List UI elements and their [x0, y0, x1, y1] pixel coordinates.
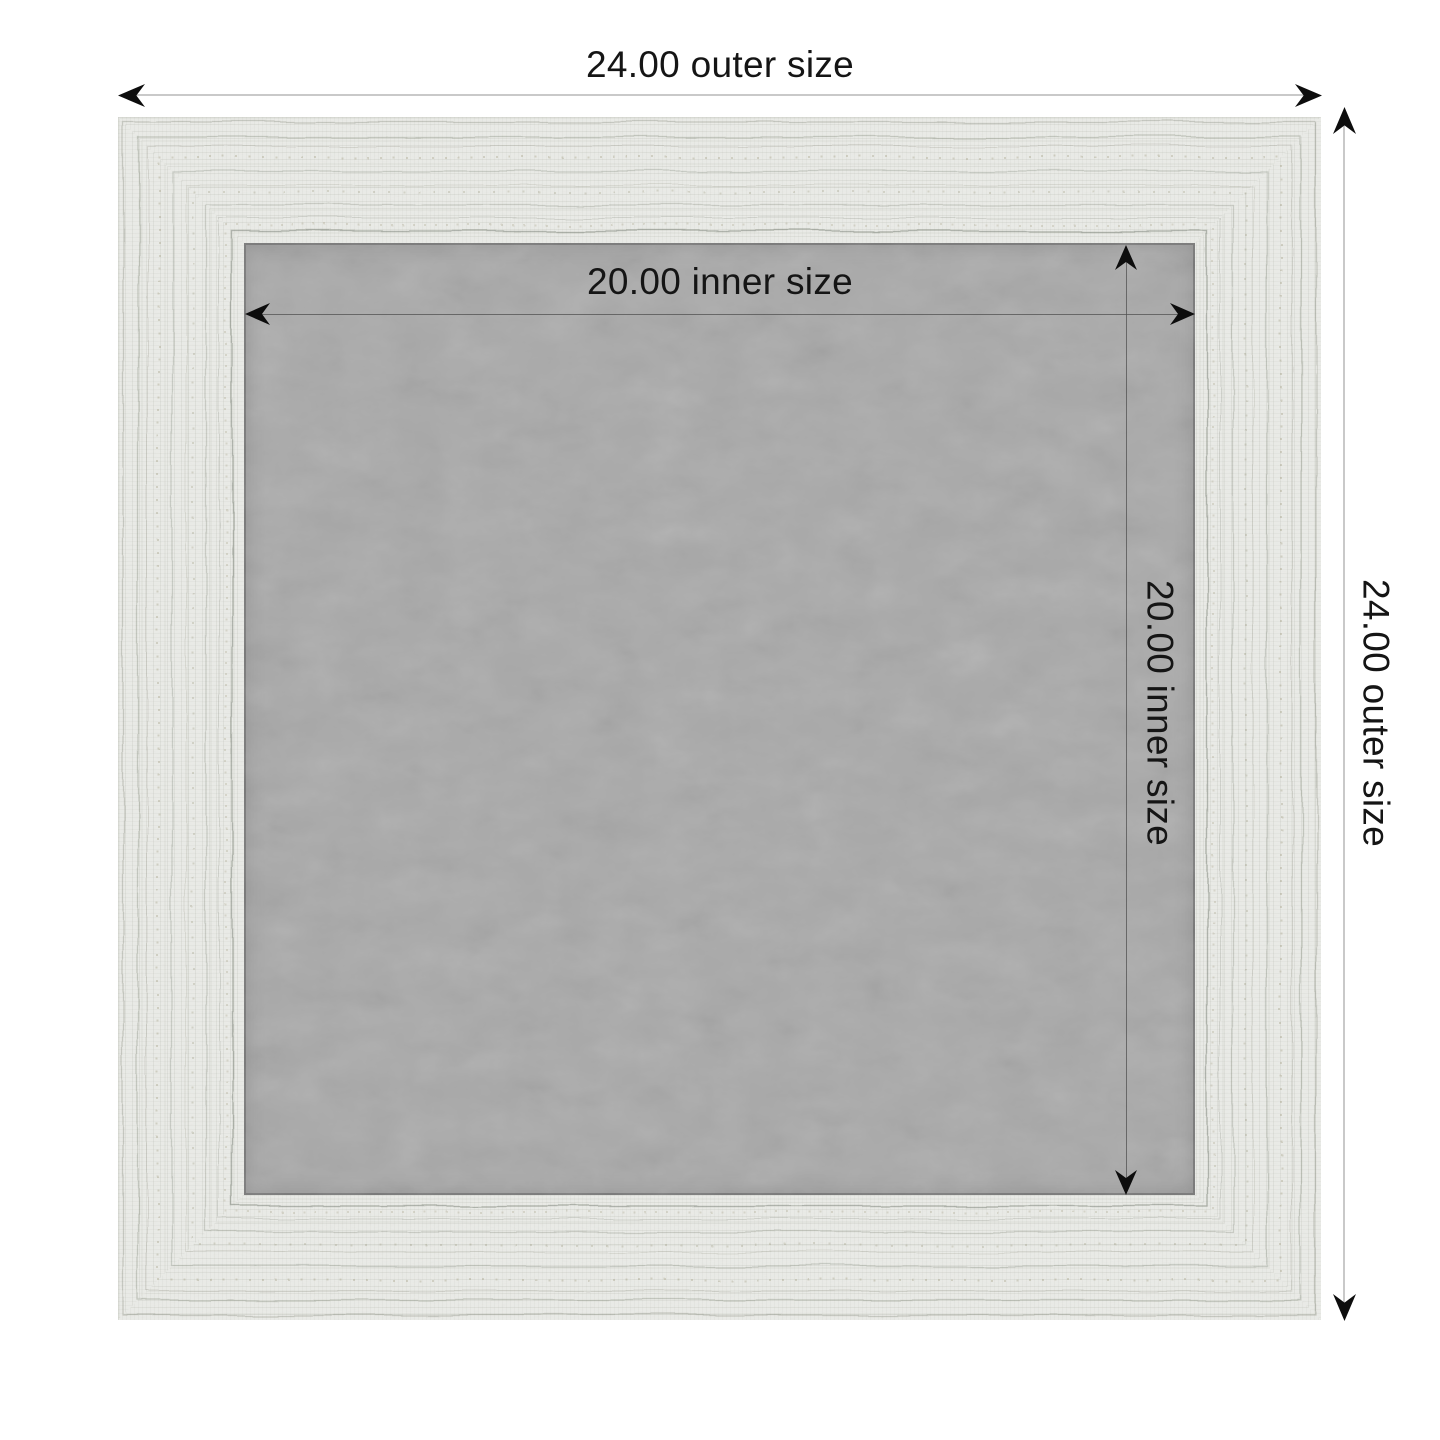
- inner-gray-board: [244, 243, 1195, 1195]
- frame-dimension-diagram: 24.00 outer size 24.00 outer size 20.00 …: [0, 0, 1440, 1440]
- inner-width-label: 20.00 inner size: [587, 261, 853, 304]
- inner-height-dimension-line: [1126, 247, 1127, 1193]
- inner-width-dimension-line: [247, 314, 1193, 315]
- inner-height-label: 20.00 inner size: [1138, 580, 1181, 846]
- outer-height-label: 24.00 outer size: [1354, 579, 1397, 847]
- board-mottle-texture: [244, 243, 1195, 1195]
- outer-width-label: 24.00 outer size: [586, 44, 854, 87]
- outer-height-dimension-line: [1343, 112, 1345, 1318]
- outer-width-dimension-line: [130, 94, 1310, 96]
